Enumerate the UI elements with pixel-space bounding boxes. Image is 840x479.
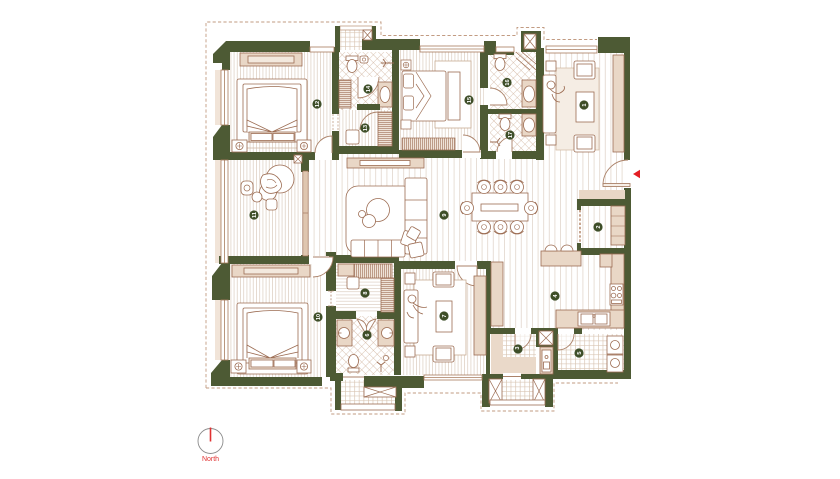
svg-text:11: 11 — [252, 212, 258, 218]
svg-text:3: 3 — [515, 346, 521, 349]
svg-text:16: 16 — [505, 79, 511, 85]
svg-text:5: 5 — [577, 351, 583, 354]
svg-text:12: 12 — [315, 101, 321, 107]
svg-text:10: 10 — [316, 314, 322, 320]
svg-text:2: 2 — [596, 225, 602, 228]
svg-text:8: 8 — [363, 291, 369, 294]
svg-text:6: 6 — [365, 333, 371, 336]
svg-text:1: 1 — [582, 103, 588, 106]
svg-text:7: 7 — [442, 314, 448, 317]
svg-text:9: 9 — [442, 213, 448, 216]
svg-text:13: 13 — [363, 125, 369, 131]
svg-text:15: 15 — [467, 97, 473, 103]
svg-text:17: 17 — [508, 132, 514, 138]
svg-text:North: North — [202, 456, 219, 463]
svg-text:14: 14 — [366, 85, 372, 92]
